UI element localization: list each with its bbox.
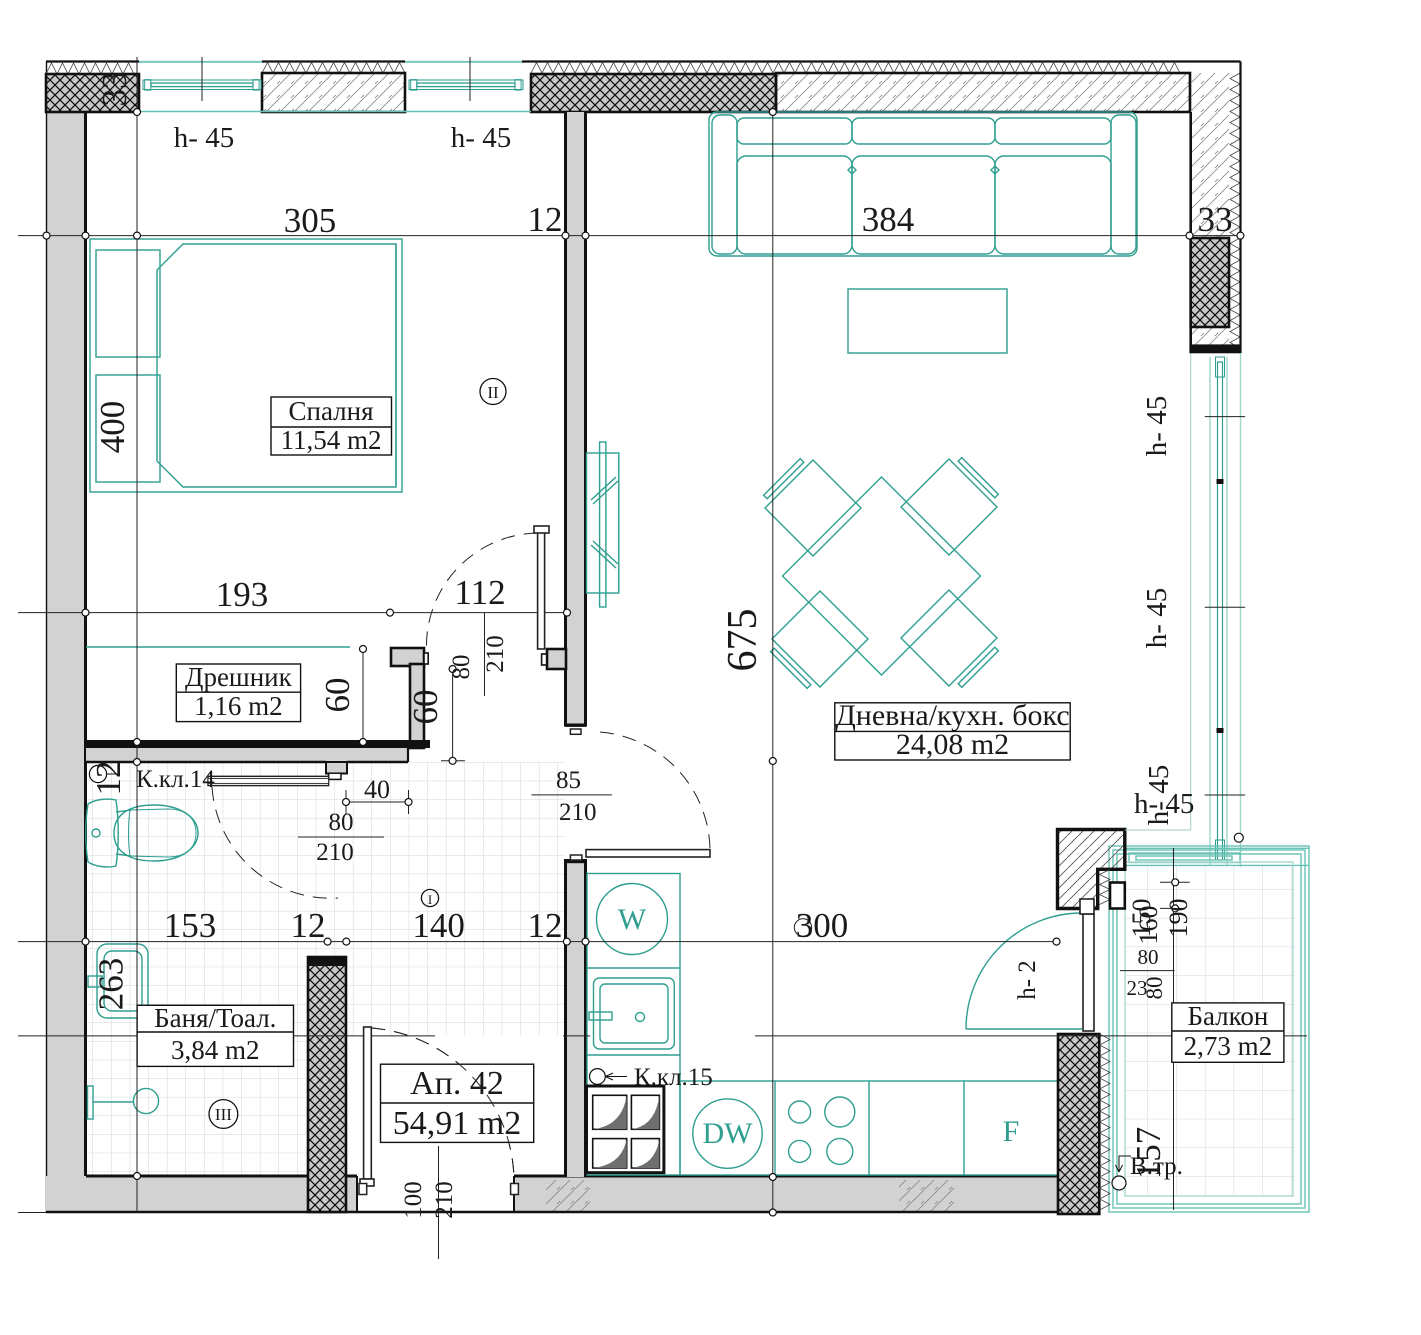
svg-text:11,54 m2: 11,54 m2: [281, 425, 382, 455]
svg-text:300: 300: [796, 906, 849, 945]
svg-text:Баня/Тоал.: Баня/Тоал.: [154, 1003, 276, 1033]
svg-text:Дрешник: Дрешник: [185, 662, 293, 692]
svg-text:210: 210: [316, 839, 354, 866]
svg-text:210: 210: [431, 1181, 458, 1219]
svg-text:80: 80: [329, 809, 354, 836]
svg-text:80: 80: [1142, 977, 1167, 1000]
svg-text:К.кл.15: К.кл.15: [634, 1064, 713, 1091]
svg-text:150: 150: [1127, 899, 1156, 938]
svg-text:60: 60: [318, 678, 357, 713]
svg-text:h- 45: h- 45: [1141, 396, 1173, 456]
svg-text:h- 45: h- 45: [1141, 588, 1173, 648]
svg-text:33: 33: [95, 72, 134, 107]
svg-text:I: I: [428, 892, 432, 907]
svg-text:153: 153: [164, 906, 217, 945]
svg-text:40: 40: [364, 775, 390, 804]
svg-text:Ап. 42: Ап. 42: [410, 1065, 504, 1102]
svg-text:Балкон: Балкон: [1187, 1001, 1268, 1031]
svg-text:В.тр.: В.тр.: [1130, 1153, 1183, 1180]
svg-text:h- 45: h- 45: [451, 122, 511, 154]
svg-text:100: 100: [400, 1181, 427, 1219]
svg-text:80: 80: [1138, 945, 1159, 969]
svg-text:190: 190: [1164, 899, 1193, 938]
svg-text:24,08 m2: 24,08 m2: [896, 728, 1009, 761]
svg-text:12: 12: [291, 906, 326, 945]
svg-text:60: 60: [406, 690, 445, 725]
svg-text:33: 33: [1198, 200, 1233, 239]
svg-text:112: 112: [454, 573, 505, 612]
svg-text:210: 210: [559, 799, 597, 826]
svg-text:210: 210: [482, 635, 509, 673]
svg-text:1,16 m2: 1,16 m2: [194, 691, 283, 721]
svg-text:54,91 m2: 54,91 m2: [393, 1105, 521, 1142]
svg-text:384: 384: [862, 200, 915, 239]
svg-text:80: 80: [448, 655, 475, 680]
svg-text:85: 85: [556, 767, 581, 794]
svg-text:675: 675: [720, 609, 766, 672]
svg-text:193: 193: [216, 575, 269, 614]
svg-text:305: 305: [284, 201, 337, 240]
svg-text:W: W: [618, 903, 647, 936]
svg-text:h- 45: h- 45: [174, 122, 234, 154]
svg-text:F: F: [1003, 1115, 1020, 1148]
svg-text:III: III: [215, 1105, 232, 1124]
svg-text:DW: DW: [703, 1117, 754, 1150]
svg-text:II: II: [487, 383, 499, 402]
svg-text:140: 140: [412, 906, 465, 945]
svg-text:400: 400: [93, 401, 132, 454]
svg-text:К.кл.14: К.кл.14: [136, 766, 215, 793]
svg-text:12: 12: [528, 906, 563, 945]
svg-text:3,84 m2: 3,84 m2: [171, 1035, 260, 1065]
svg-text:12: 12: [89, 761, 128, 796]
svg-text:h- 45: h- 45: [1134, 788, 1194, 820]
svg-text:h- 2: h- 2: [1014, 960, 1041, 1000]
svg-text:2,73 m2: 2,73 m2: [1184, 1031, 1273, 1061]
svg-text:263: 263: [92, 958, 131, 1011]
svg-text:Спалня: Спалня: [288, 396, 373, 426]
svg-text:12: 12: [528, 200, 563, 239]
